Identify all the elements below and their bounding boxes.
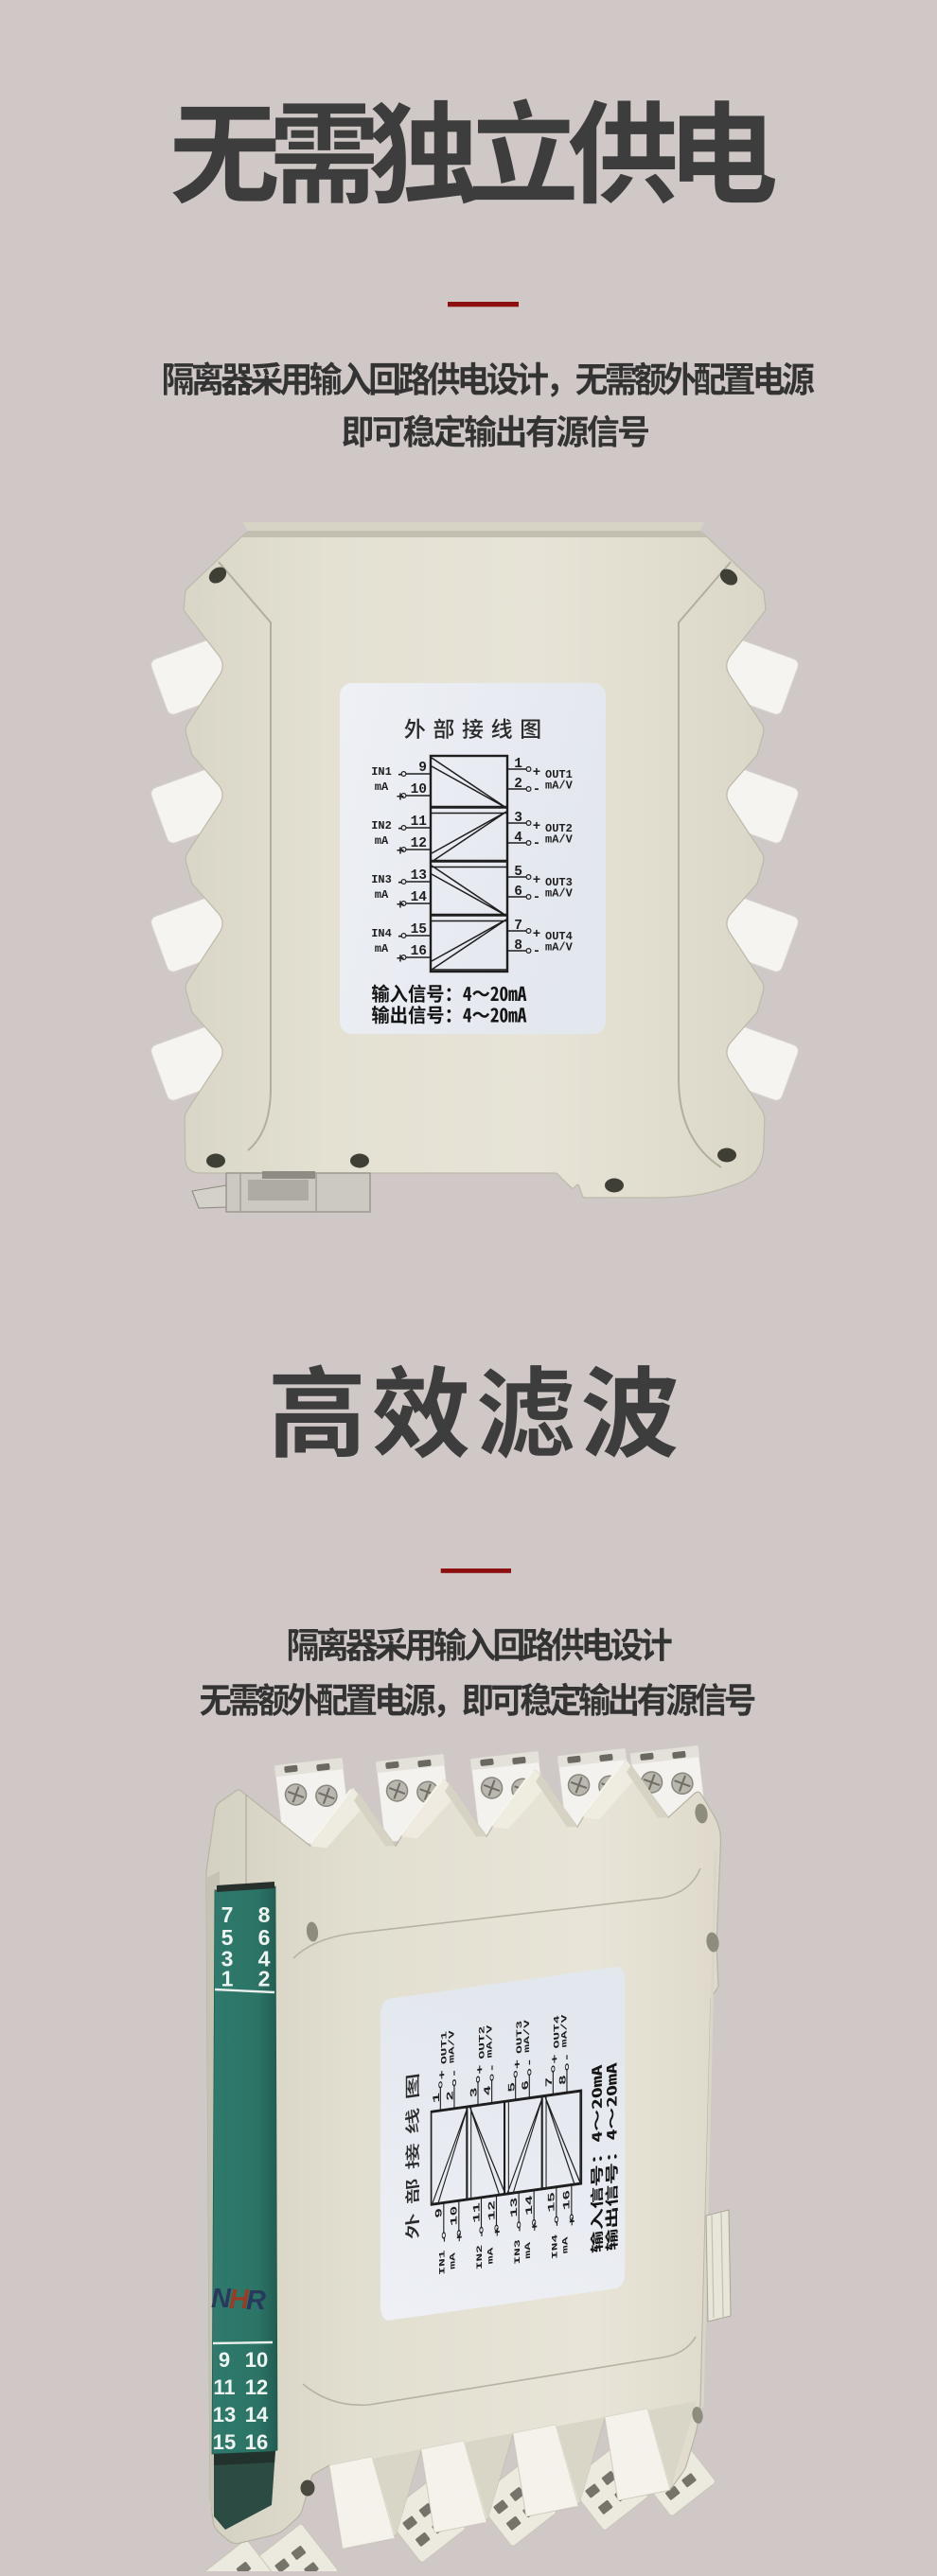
svg-text:15: 15	[213, 2430, 236, 2454]
svg-text:R: R	[246, 2286, 266, 2316]
svg-text:8: 8	[258, 1902, 271, 1927]
svg-text:2: 2	[258, 1967, 271, 1991]
svg-text:1: 1	[221, 1967, 234, 1991]
svg-text:16: 16	[245, 2430, 268, 2454]
svg-text:13: 13	[213, 2403, 236, 2427]
svg-text:10: 10	[245, 2348, 268, 2372]
svg-text:7: 7	[221, 1902, 234, 1927]
svg-text:12: 12	[245, 2375, 268, 2399]
svg-text:9: 9	[219, 2348, 230, 2372]
svg-text:14: 14	[245, 2403, 269, 2427]
svg-text:11: 11	[213, 2375, 235, 2399]
